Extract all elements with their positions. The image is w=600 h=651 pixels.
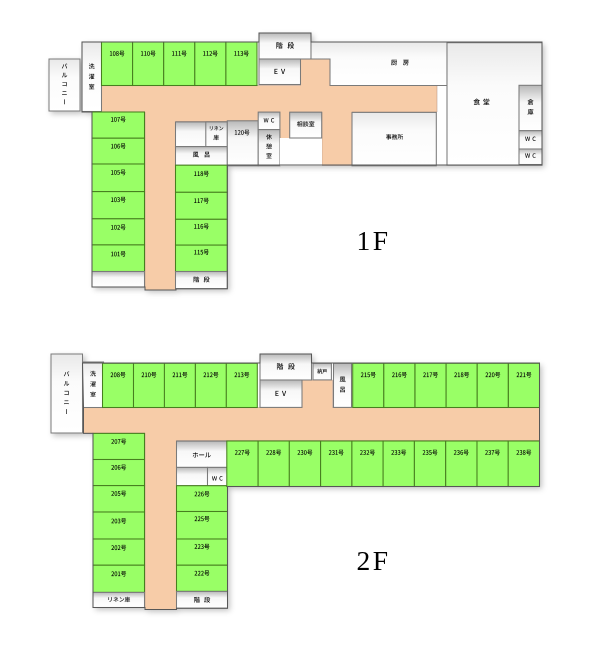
svg-text:1F: 1F: [357, 225, 391, 256]
svg-text:2F: 2F: [357, 545, 391, 576]
